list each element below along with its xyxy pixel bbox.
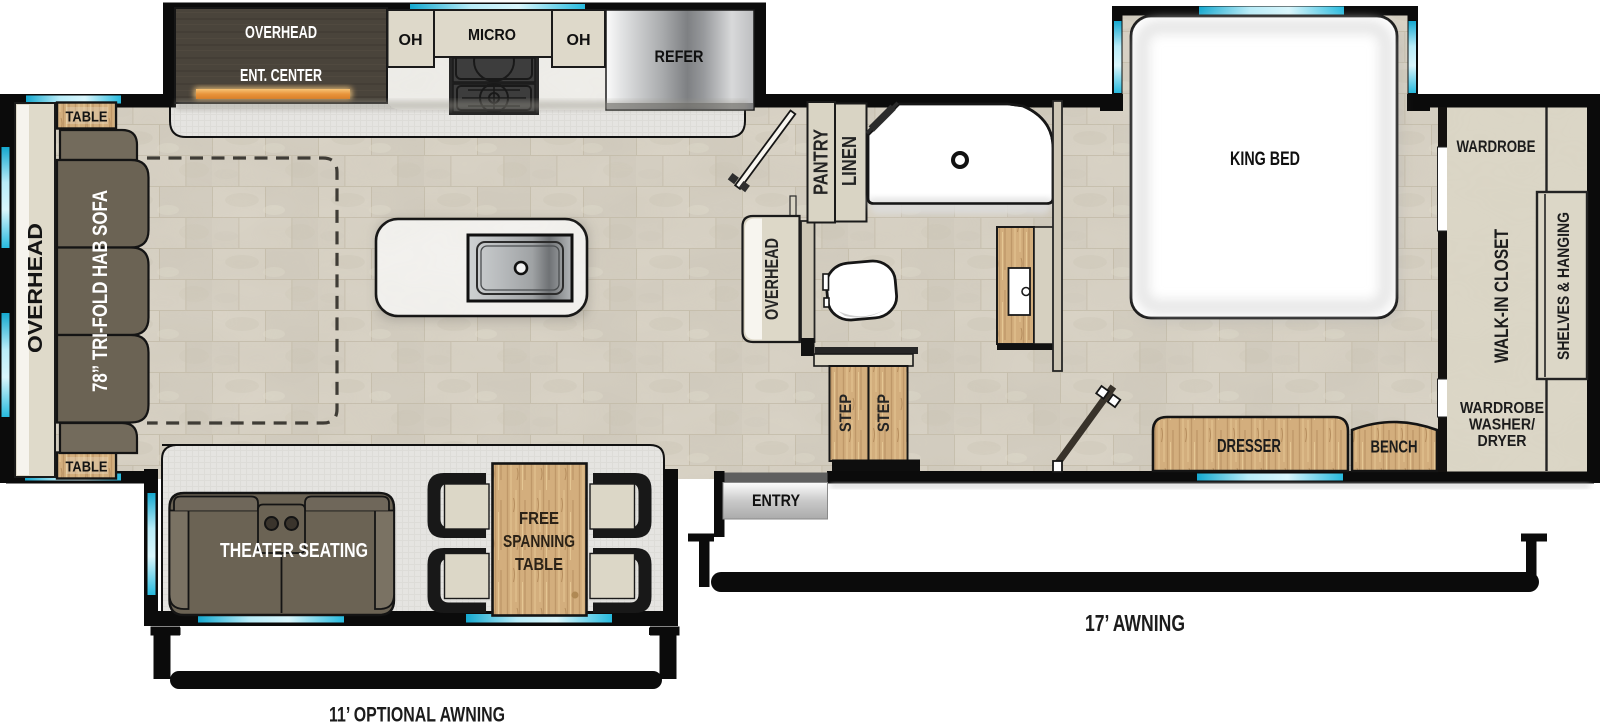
svg-text:DRYER: DRYER [1478,433,1527,450]
svg-text:TABLE: TABLE [515,554,563,574]
svg-text:STEP: STEP [836,394,855,432]
svg-text:11’ OPTIONAL AWNING: 11’ OPTIONAL AWNING [329,703,505,723]
svg-text:78” TRI-FOLD HAB SOFA: 78” TRI-FOLD HAB SOFA [89,190,112,392]
svg-text:WALK-IN CLOSET: WALK-IN CLOSET [1492,229,1513,363]
svg-text:KING BED: KING BED [1230,149,1300,170]
svg-text:ENTRY: ENTRY [752,492,800,510]
svg-text:TABLE: TABLE [66,460,108,476]
svg-text:OVERHEAD: OVERHEAD [25,223,47,353]
svg-text:OH: OH [399,32,423,49]
svg-text:DRESSER: DRESSER [1217,436,1281,456]
svg-text:LINEN: LINEN [839,136,861,186]
svg-text:OH: OH [567,32,591,49]
svg-text:SHELVES & HANGING: SHELVES & HANGING [1555,212,1573,360]
svg-text:PANTRY: PANTRY [811,128,833,195]
svg-text:TABLE: TABLE [66,110,108,126]
svg-text:FREE: FREE [519,508,559,528]
svg-text:STEP: STEP [874,394,893,432]
svg-text:REFER: REFER [655,48,704,66]
svg-text:OVERHEAD: OVERHEAD [761,238,782,320]
svg-text:THEATER SEATING: THEATER SEATING [220,540,368,562]
svg-text:WASHER/: WASHER/ [1469,417,1536,434]
svg-text:WARDROBE: WARDROBE [1460,400,1544,417]
svg-text:WARDROBE: WARDROBE [1457,138,1536,156]
svg-text:BENCH: BENCH [1371,437,1418,457]
svg-text:ENT. CENTER: ENT. CENTER [240,65,322,85]
svg-text:17’ AWNING: 17’ AWNING [1085,610,1185,636]
svg-text:MICRO: MICRO [468,27,516,44]
svg-text:OVERHEAD: OVERHEAD [245,22,317,42]
svg-text:SPANNING: SPANNING [503,531,575,551]
